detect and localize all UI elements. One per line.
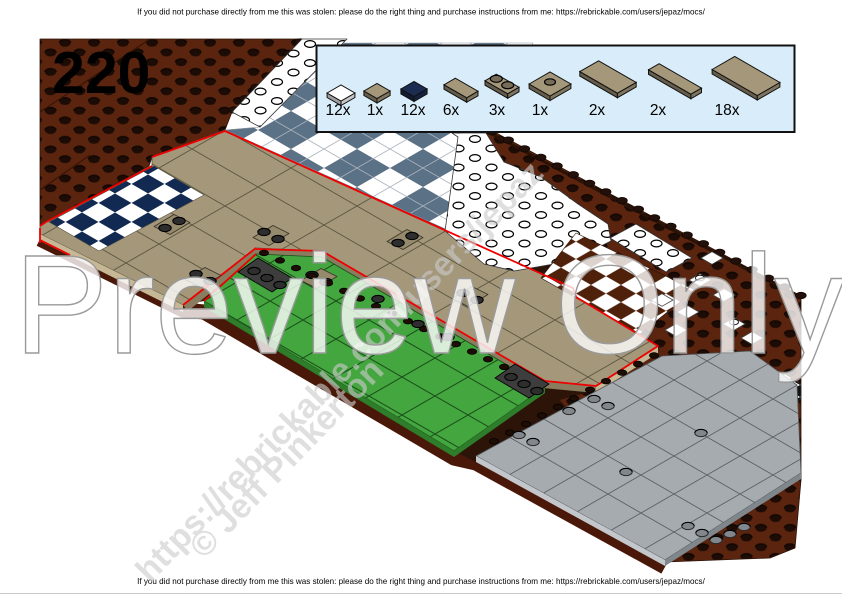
svg-text:6x: 6x	[443, 102, 460, 119]
svg-text:2x: 2x	[650, 102, 667, 119]
svg-text:220: 220	[52, 40, 150, 106]
svg-text:12x: 12x	[401, 102, 426, 119]
svg-text:12x: 12x	[326, 102, 351, 119]
svg-text:18x: 18x	[715, 102, 740, 119]
svg-text:2x: 2x	[589, 102, 606, 119]
svg-text:1x: 1x	[367, 102, 384, 119]
svg-text:1x: 1x	[532, 102, 549, 119]
svg-text:If you did not purchase direct: If you did not purchase directly from me…	[137, 577, 705, 586]
svg-text:Preview Only: Preview Only	[14, 225, 842, 383]
svg-text:3x: 3x	[489, 102, 506, 119]
svg-text:If you did not purchase direct: If you did not purchase directly from me…	[137, 8, 705, 17]
